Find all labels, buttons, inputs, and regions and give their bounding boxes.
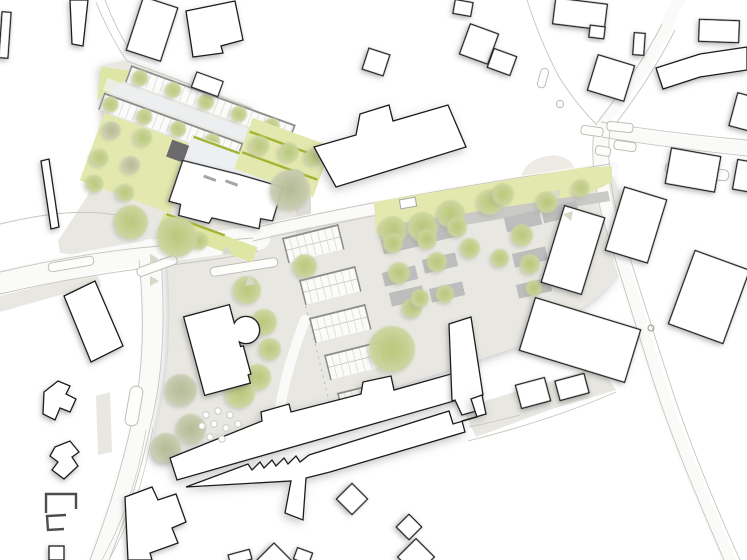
plaza-dot bbox=[207, 434, 213, 440]
plaza-dot bbox=[199, 423, 205, 429]
context-building bbox=[453, 0, 473, 16]
traffic-island bbox=[557, 101, 564, 108]
plaza-dot bbox=[227, 412, 233, 418]
road-shoulder bbox=[96, 392, 112, 455]
plaza-dot bbox=[203, 412, 209, 418]
plaza-dot bbox=[215, 408, 221, 414]
context-building bbox=[589, 25, 605, 39]
plaza-dot bbox=[235, 421, 241, 427]
plaza-dot bbox=[223, 425, 229, 431]
context-building bbox=[665, 148, 720, 192]
site-plan bbox=[0, 0, 747, 560]
plaza-dot bbox=[211, 421, 217, 427]
context-building bbox=[699, 19, 740, 42]
context-building bbox=[633, 33, 646, 56]
plaza-dot bbox=[219, 436, 225, 442]
site-plan-canvas bbox=[0, 0, 747, 560]
house bbox=[49, 546, 64, 560]
